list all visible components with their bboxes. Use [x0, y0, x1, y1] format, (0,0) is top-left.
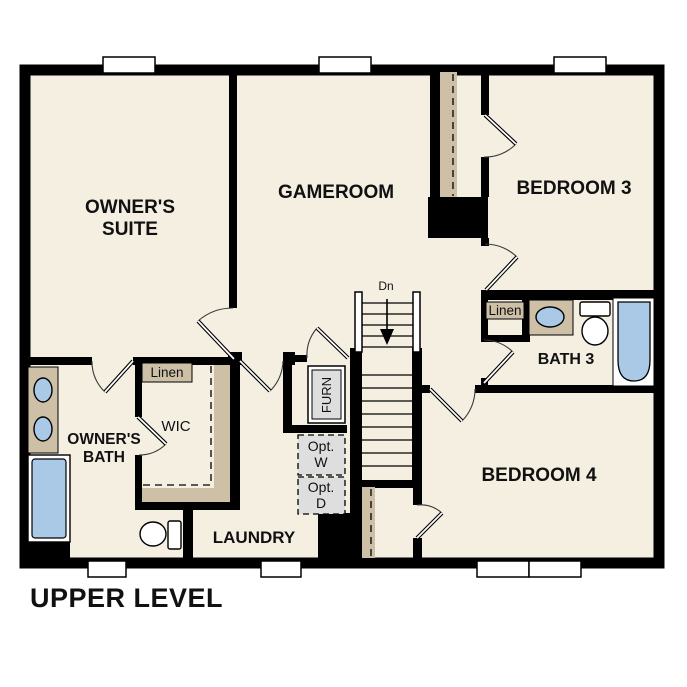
- bath3-toilet: [580, 302, 610, 345]
- opt-washer-label-2: W: [314, 454, 328, 470]
- window-laundry: [261, 561, 301, 577]
- bedroom4-label: BEDROOM 4: [481, 465, 597, 486]
- opt-dryer-label-2: D: [316, 495, 326, 511]
- sink-icon: [34, 417, 52, 441]
- opt-dryer-label-1: Opt.: [308, 479, 334, 495]
- bath3-label: BATH 3: [538, 351, 595, 368]
- sink-icon: [34, 378, 52, 402]
- window-bedroom3: [554, 57, 606, 73]
- wic-label: WIC: [161, 418, 190, 435]
- bedroom3-label: BEDROOM 3: [516, 178, 631, 199]
- linen-wic-label: Linen: [150, 365, 183, 380]
- floor-plan-canvas: Dn: [0, 0, 687, 687]
- window-owners-bath: [88, 561, 126, 577]
- laundry-label: LAUNDRY: [213, 528, 296, 547]
- bath3-tub: [613, 298, 654, 386]
- stair-rail-left: [355, 292, 362, 352]
- furnace-label: FURN: [319, 377, 334, 413]
- optional-washer: Opt. W: [298, 435, 345, 475]
- owners-suite-label-1: OWNER'S: [85, 197, 175, 218]
- window-bedroom4-left: [477, 561, 529, 577]
- furnace-unit: FURN: [308, 366, 345, 423]
- optional-dryer: Opt. D: [298, 477, 345, 514]
- bath3-vanity: [529, 300, 573, 335]
- owners-bath-vanity: [28, 367, 58, 453]
- stair-rail-right: [413, 292, 420, 352]
- stairs-direction-label: Dn: [378, 279, 393, 293]
- owners-shower: [28, 455, 70, 542]
- window-gameroom: [319, 57, 371, 73]
- plan-title: UPPER LEVEL: [30, 583, 223, 613]
- floor-plan-page: Dn: [0, 0, 687, 687]
- gameroom-label: GAMEROOM: [278, 182, 394, 203]
- linen-bath3-label: Linen: [488, 303, 521, 318]
- owners-bath-label-1: OWNER'S: [67, 431, 140, 448]
- sink-icon: [536, 307, 564, 327]
- window-owners-suite: [103, 57, 155, 73]
- opt-washer-label-1: Opt.: [308, 438, 334, 454]
- owners-suite-label-2: SUITE: [102, 219, 158, 240]
- owners-bath-label-2: BATH: [83, 449, 125, 466]
- window-bedroom4-right: [529, 561, 581, 577]
